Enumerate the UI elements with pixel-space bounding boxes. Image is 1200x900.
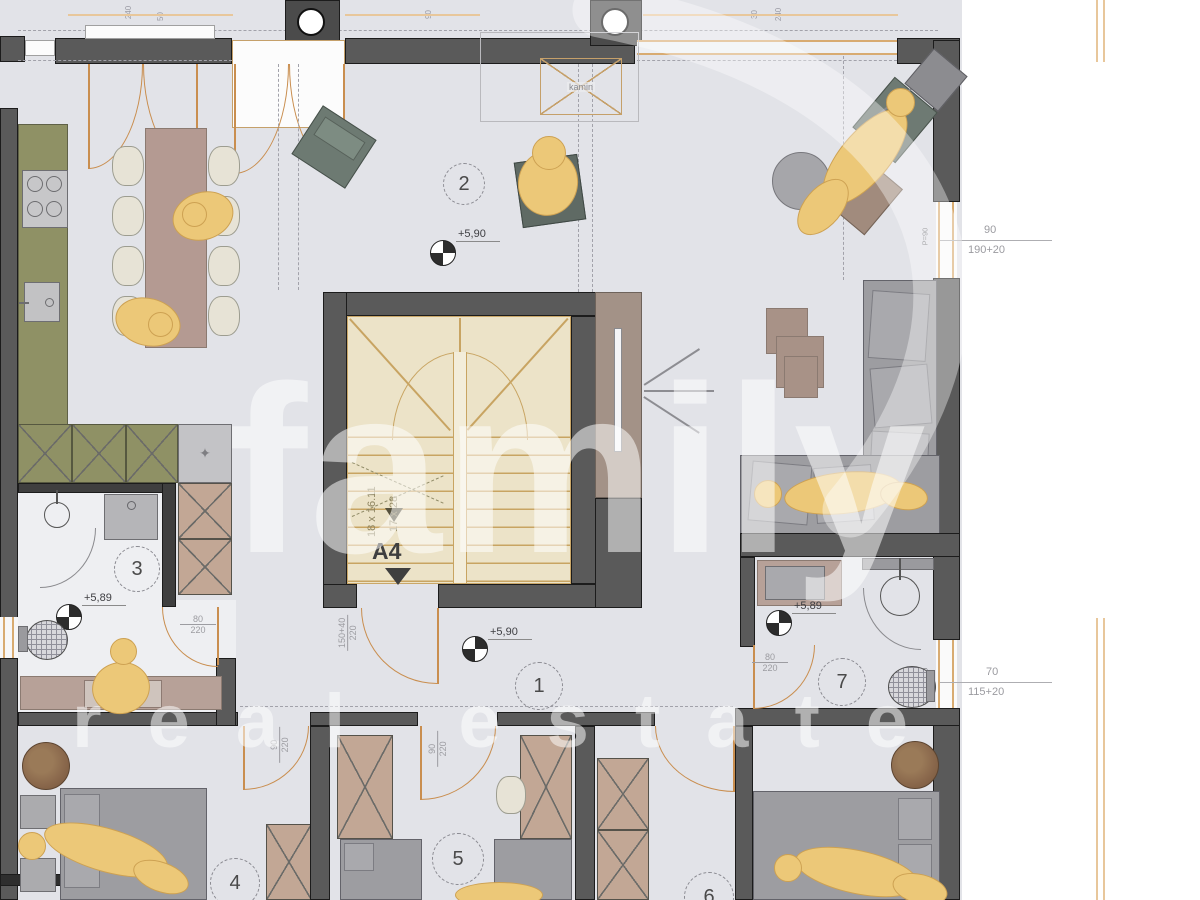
section-line — [1103, 0, 1105, 62]
room-number: 7 — [836, 671, 847, 694]
wc-wall-left — [740, 557, 755, 647]
section-line — [1096, 618, 1098, 900]
dining-chair — [112, 246, 144, 286]
wardrobe — [337, 735, 393, 839]
room-label-1: 1 — [515, 662, 563, 710]
counter-end: ✦ — [178, 424, 232, 483]
page-margin — [962, 0, 1200, 900]
dim-right-top-num: 90 — [984, 224, 996, 236]
dim-line — [940, 240, 1052, 241]
dining-chair — [208, 296, 240, 336]
stair-flight-a-label: 18 x 16.11 — [366, 486, 378, 537]
wall-room5-room6 — [575, 726, 595, 900]
nightstand — [20, 858, 56, 892]
pouf — [22, 742, 70, 790]
fireplace-icon: kamin — [540, 58, 622, 115]
duct-line — [278, 64, 279, 290]
level-marker-icon — [462, 636, 488, 662]
sink-stem — [899, 558, 901, 580]
level-text: +5,90 — [456, 228, 500, 242]
dim-guide-line — [345, 14, 480, 16]
wardrobe — [597, 758, 649, 830]
sofa-cushion — [869, 364, 932, 429]
door-height: 220 — [281, 727, 291, 763]
duct-line — [298, 64, 299, 290]
window-right-line — [938, 640, 940, 716]
section-marker-label: A4 — [372, 538, 401, 565]
dim-guide-line — [643, 14, 898, 16]
door-height: 220 — [349, 615, 359, 651]
dining-chair — [208, 146, 240, 186]
tv-ray — [644, 390, 714, 392]
section-marker-icon — [385, 568, 411, 585]
room-number: 2 — [458, 173, 469, 196]
hall-wall-bottom — [310, 712, 418, 726]
door-width: 150+40 — [337, 615, 348, 651]
dining-chair — [112, 146, 144, 186]
desk-chair — [496, 776, 526, 814]
level-text: +5,90 — [488, 626, 532, 640]
door-height: 220 — [439, 731, 449, 767]
hall-wall-bottom — [735, 708, 960, 726]
door-size-label: 150+40 220 — [337, 615, 359, 651]
wardrobe — [178, 483, 232, 539]
pouf — [891, 741, 939, 789]
dim-right-top-den: 190+20 — [968, 244, 1005, 256]
window-lintel — [85, 25, 215, 39]
door-size-label: 90 220 — [427, 731, 449, 767]
bathroom-sink-icon — [104, 494, 158, 540]
door-size-label: 90 220 — [269, 727, 291, 763]
door-height: 220 — [752, 663, 788, 673]
door-height: 220 — [180, 625, 216, 635]
level-marker-icon — [430, 240, 456, 266]
door-width: 90 — [427, 731, 438, 767]
dim-line — [940, 682, 1052, 683]
door-width: 90 — [269, 727, 280, 763]
level-marker-icon — [766, 610, 792, 636]
towel-radiator-icon — [44, 502, 70, 528]
kitchen-cabinet — [18, 424, 72, 483]
wall-room6-divider — [735, 726, 753, 900]
wc-wall-top — [740, 533, 960, 557]
toilet-tank — [926, 670, 935, 702]
tv-icon — [614, 328, 622, 452]
room-label-5: 5 — [432, 833, 484, 885]
stair-door-leaf — [437, 608, 439, 684]
bathroom-wall-top — [18, 483, 170, 493]
room-label-7: 7 — [818, 658, 866, 706]
stair-flight-b-label: 17 x 28 — [388, 496, 400, 532]
plant-icon: ✦ — [199, 445, 211, 462]
door-size-label: 80 220 — [180, 614, 216, 636]
wall-left — [0, 108, 18, 618]
wall-top-left-corner — [0, 36, 25, 62]
window-right-line — [952, 640, 954, 716]
level-text: +5,89 — [82, 592, 126, 606]
nook-wall-bottom — [18, 712, 238, 726]
stair-divider — [453, 352, 467, 583]
window-band-line — [637, 53, 897, 55]
sofa-cushion — [868, 290, 931, 362]
bathroom-wall-right — [162, 483, 176, 607]
room-label-3: 3 — [114, 546, 160, 592]
window-left-line — [3, 617, 5, 658]
pillow — [898, 798, 932, 840]
kitchen-cabinet — [72, 424, 126, 483]
kitchen-sink-icon — [24, 282, 60, 322]
room-number: 1 — [533, 675, 544, 698]
dim-right-bottom-den: 115+20 — [968, 686, 1004, 698]
wardrobe — [178, 539, 232, 595]
room-label-2: 2 — [443, 163, 485, 205]
nightstand — [20, 795, 56, 829]
dining-chair — [208, 246, 240, 286]
chimney-flue-icon — [297, 8, 325, 36]
hall-wall-bottom — [497, 712, 655, 726]
stove-icon — [22, 170, 68, 228]
room-number: 3 — [131, 558, 142, 581]
layout-dashed — [18, 60, 232, 61]
kitchen-cabinet — [126, 424, 178, 483]
dim-guide-line — [68, 14, 233, 16]
wc-sink-bar — [862, 558, 934, 570]
coffee-table — [784, 356, 818, 398]
section-line — [1096, 0, 1098, 62]
window-band-line — [637, 40, 897, 42]
pillow — [344, 843, 374, 871]
level-text: +5,89 — [792, 600, 836, 614]
stair-wall-right — [571, 316, 597, 584]
room-label-4: 4 — [210, 858, 260, 900]
window-band-dashed — [637, 60, 897, 61]
wardrobe — [597, 830, 649, 900]
floor-plan: 240 50 90 30 240 90 190+20 P — [0, 0, 1200, 900]
room-number: 6 — [703, 886, 714, 900]
layout-dashed — [240, 706, 733, 707]
toilet-icon — [26, 620, 68, 660]
door-width: 80 — [180, 614, 216, 625]
section-line — [1103, 618, 1105, 900]
parapet-label: P=90 — [920, 228, 929, 246]
room-number: 4 — [229, 872, 240, 895]
door-size-label: 80 220 — [752, 652, 788, 674]
radiator-stem — [56, 490, 58, 504]
stair-wall-right-lower — [595, 498, 642, 608]
washer-icon — [765, 566, 825, 600]
dim-right-bottom-num: 70 — [986, 666, 998, 678]
wall-room4-room5 — [310, 726, 330, 900]
room-number: 5 — [452, 848, 463, 871]
window-left-line — [12, 617, 14, 658]
fireplace-label: kamin — [567, 82, 595, 92]
wardrobe — [520, 735, 572, 839]
toilet-tank — [18, 626, 28, 652]
door-width: 80 — [752, 652, 788, 663]
wall-left — [0, 658, 18, 900]
stair-wall-bottom-stub — [323, 584, 357, 608]
dining-chair — [112, 196, 144, 236]
window-top-left — [25, 40, 55, 56]
wardrobe — [266, 824, 312, 900]
top-dim-label: 240 — [124, 6, 133, 19]
stair-wall-left — [323, 292, 347, 608]
